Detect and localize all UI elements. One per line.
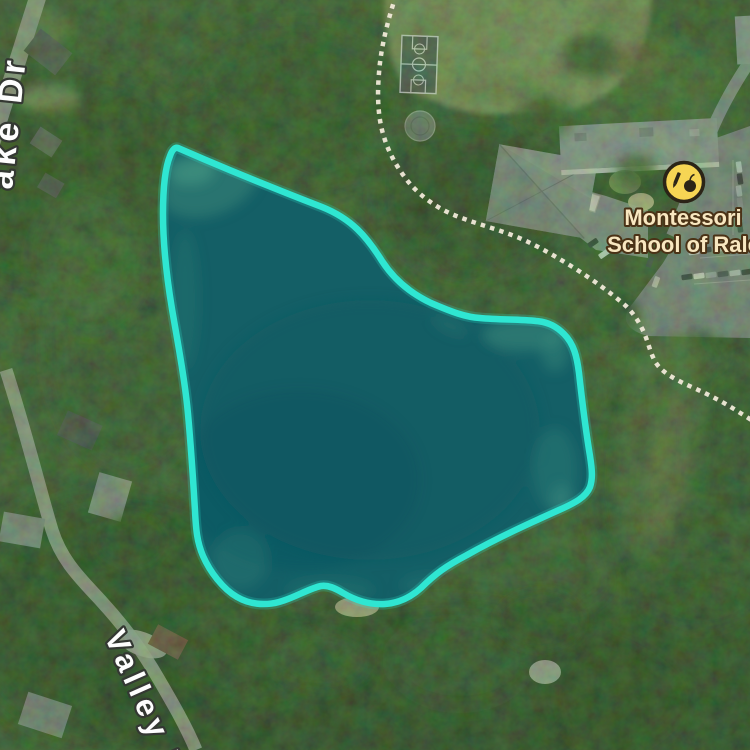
poi-label-line1: Montessori [624,205,741,230]
map-canvas[interactable]: ake Dr Valley L Montessori School of Ral… [0,0,750,750]
satellite-imagery: ake Dr Valley L Montessori School of Ral… [0,0,750,750]
poi-label-line2: School of Raleigh [607,232,750,257]
school-icon[interactable] [665,163,704,202]
